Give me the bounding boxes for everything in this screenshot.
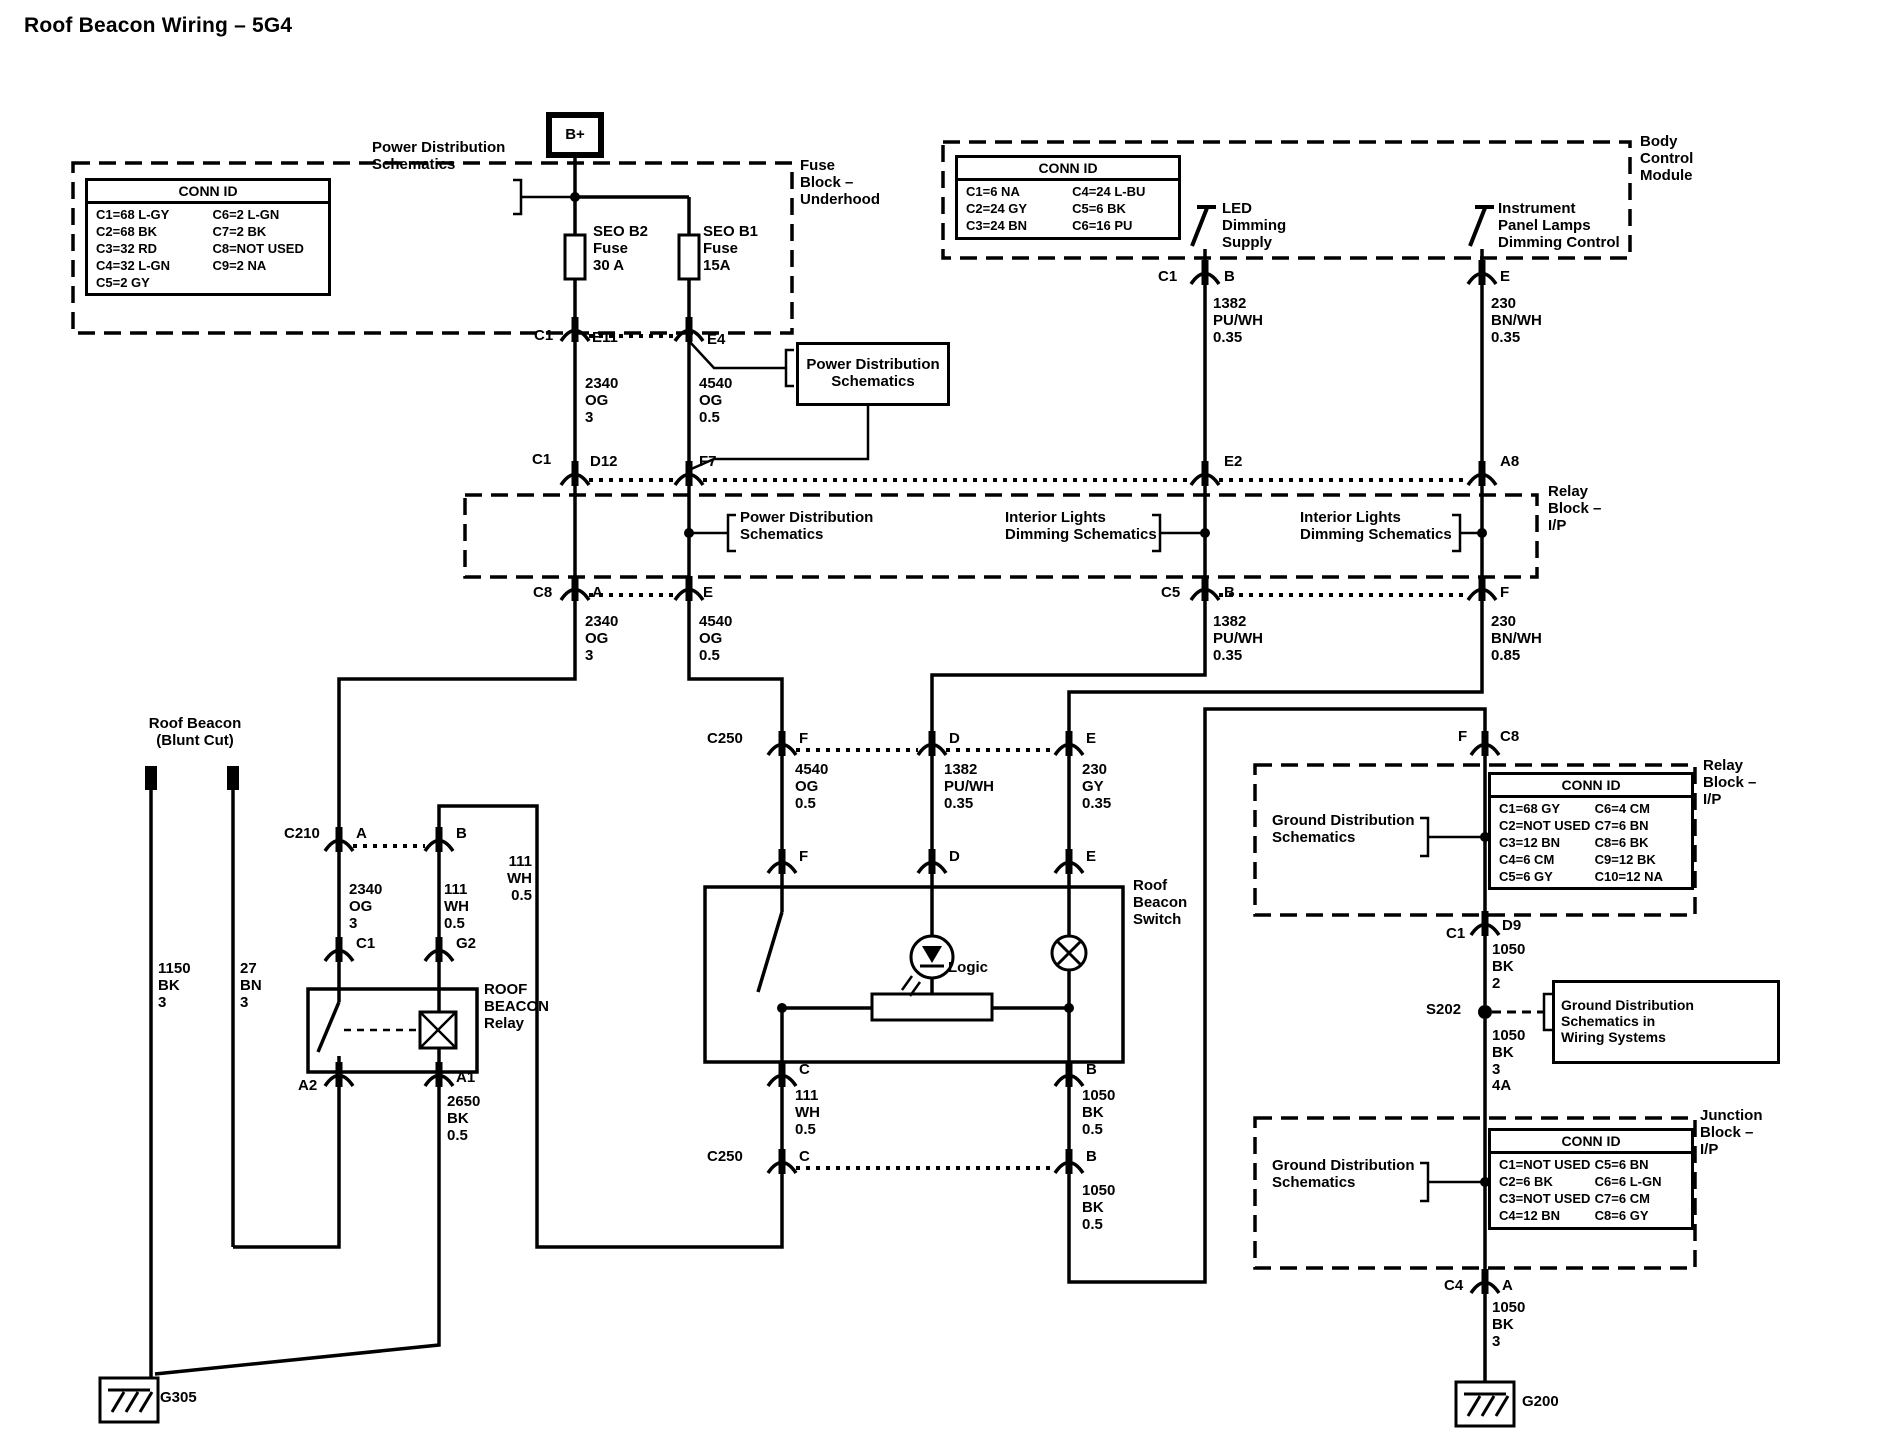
g200-label: G200: [1522, 1394, 1559, 1411]
gds-2-label: Ground Distribution Schematics: [1272, 1158, 1414, 1192]
blunt-cut-terminal-2: [227, 766, 239, 790]
bcm-b-label: B: [1224, 269, 1235, 286]
conn-id-box-relay-ip-row: C3=12 BNC8=6 BK: [1499, 835, 1683, 852]
gds-1-label: Ground Distribution Schematics: [1272, 813, 1414, 847]
bcm-c1-label: C1: [1158, 269, 1177, 286]
c210-a-label: A: [356, 826, 367, 843]
conn-id-cell: C8=6 GY: [1595, 1208, 1649, 1225]
w1382-2-label: 1382 PU/WH 0.35: [1213, 614, 1263, 664]
f-lbl-label: F: [1500, 585, 1509, 602]
conn-id-cell: C5=6 BN: [1595, 1157, 1649, 1174]
connector-stubs: [339, 260, 1485, 1294]
conn-id-cell: C8=NOT USED: [212, 241, 303, 258]
rc1-label: C1: [356, 936, 375, 953]
d12-label: D12: [590, 454, 618, 471]
sw-e-label: E: [1086, 849, 1096, 866]
conn-id-cell: C6=16 PU: [1072, 218, 1132, 235]
a2-label: A2: [298, 1078, 317, 1095]
conn-id-cell: C5=6 BK: [1072, 201, 1126, 218]
w2340-2-label: 2340 OG 3: [585, 614, 618, 664]
c5-lbl-label: C5: [1161, 585, 1180, 602]
conn-id-cell: C5=6 GY: [1499, 869, 1595, 886]
g305-label: G305: [160, 1390, 197, 1407]
logic-box: [872, 994, 992, 1020]
conn-id-box-bcm-row: C3=24 BNC6=16 PU: [966, 218, 1170, 235]
g2-label: G2: [456, 936, 476, 953]
conn-id-box-junction-ip-row: C2=6 BKC6=6 L-GN: [1499, 1174, 1683, 1191]
e11-label: E11: [592, 330, 618, 347]
conn-id-box-relay-ip-row: C4=6 CMC9=12 BK: [1499, 852, 1683, 869]
sw-c-label: C: [799, 1062, 810, 1079]
conn-id-cell: C7=6 CM: [1595, 1191, 1650, 1208]
sw-f-label: F: [799, 849, 808, 866]
w230gy-label: 230 GY 0.35: [1082, 762, 1111, 812]
conn-id-box-junction-ip-row: C4=12 BNC8=6 GY: [1499, 1208, 1683, 1225]
w4540-1-label: 4540 OG 0.5: [699, 376, 732, 426]
conn-id-cell: C1=NOT USED: [1499, 1157, 1595, 1174]
sw-b-label: B: [1086, 1062, 1097, 1079]
e4-label: E4: [707, 332, 725, 349]
blunt-label: Roof Beacon (Blunt Cut): [120, 716, 270, 750]
s202-label: S202: [1426, 1002, 1461, 1019]
conn-id-box-relay-ip-row: C2=NOT USEDC7=6 BN: [1499, 818, 1683, 835]
bcm-label: Body Control Module: [1640, 134, 1693, 184]
w1050-2-label: 1050 BK 0.5: [1082, 1183, 1115, 1233]
w1382-1-label: 1382 PU/WH 0.35: [1213, 296, 1263, 346]
sw-d-label: D: [949, 849, 960, 866]
conn-id-cell: C6=4 CM: [1595, 801, 1650, 818]
conn-c1-mid-label: C1: [532, 452, 551, 469]
ipl-control-label: Instrument Panel Lamps Dimming Control: [1498, 201, 1620, 251]
c8-lbl-label: C8: [533, 585, 552, 602]
f7-label: F7: [699, 454, 717, 471]
w1050-1-label: 1050 BK 0.5: [1082, 1088, 1115, 1138]
b-plus-label: B+: [549, 115, 601, 155]
e-lbl-label: E: [703, 585, 713, 602]
c210-label: C210: [284, 826, 320, 843]
logic-label: Logic: [948, 960, 988, 977]
conn-id-box-bcm-row: C2=24 GYC5=6 BK: [966, 201, 1170, 218]
conn-id-box-junction-ip-row: C1=NOT USEDC5=6 BN: [1499, 1157, 1683, 1174]
w111-2-label: 111 WH 0.5: [795, 1088, 820, 1138]
conn-c1-top-label: C1: [534, 328, 553, 345]
conn-id-cell: C6=6 L-GN: [1595, 1174, 1662, 1191]
rbs-label: Roof Beacon Switch: [1133, 878, 1187, 928]
bcm-e-label: E: [1500, 269, 1510, 286]
w27-label: 27 BN 3: [240, 961, 262, 1011]
conn-id-cell: C3=12 BN: [1499, 835, 1595, 852]
wiring-diagram-page: Roof Beacon Wiring – 5G4B+Power Distribu…: [0, 0, 1894, 1440]
conn-id-cell: C2=24 GY: [966, 201, 1072, 218]
roof-beacon-relay-box: [308, 989, 477, 1072]
title-label: Roof Beacon Wiring – 5G4: [24, 14, 292, 37]
conn-id-cell: C5=2 GY: [96, 275, 212, 292]
fuse-block-label: Fuse Block – Underhood: [800, 158, 880, 208]
relay-name-label: ROOF BEACON Relay: [484, 982, 549, 1032]
conn-id-cell: C6=2 L-GN: [212, 207, 279, 224]
w1150-label: 1150 BK 3: [158, 961, 191, 1011]
ilds-1-label: Interior Lights Dimming Schematics: [1005, 510, 1157, 544]
conn-id-box-fuse-underhood-row: C1=68 L-GYC6=2 L-GN: [96, 207, 320, 224]
conn-id-cell: C4=12 BN: [1499, 1208, 1595, 1225]
conn-id-cell: C1=6 NA: [966, 184, 1072, 201]
junction-ip-label: Junction Block – I/P: [1700, 1108, 1763, 1158]
ground-symbol-g305: [100, 1378, 158, 1422]
c250-d1-label: D: [949, 731, 960, 748]
conn-id-box-relay-ip-header: CONN ID: [1491, 775, 1691, 798]
conn-id-cell: C2=NOT USED: [1499, 818, 1595, 835]
instrument-panel-dimming-icon: [1470, 207, 1494, 246]
conn-id-cell: C8=6 BK: [1595, 835, 1649, 852]
fuse-seo-b1-symbol: [679, 235, 699, 279]
conn-id-cell: C7=2 BK: [212, 224, 266, 241]
w1050-bk2-label: 1050 BK 2: [1492, 942, 1525, 992]
connector-arcs: [325, 274, 1499, 1294]
w111-3-label: 111 WH 0.5: [492, 854, 532, 904]
ilds-2-label: Interior Lights Dimming Schematics: [1300, 510, 1452, 544]
w2650-label: 2650 BK 0.5: [447, 1094, 480, 1144]
w1050-34a-label: 1050 BK 3 4A: [1492, 1028, 1525, 1095]
conn-id-box-relay-ip: CONN IDC1=68 GYC6=4 CMC2=NOT USEDC7=6 BN…: [1488, 772, 1694, 890]
conn-id-box-junction-ip-header: CONN ID: [1491, 1131, 1691, 1154]
c210-b-label: B: [456, 826, 467, 843]
b-lbl-label: B: [1224, 585, 1235, 602]
c8-top-label: C8: [1500, 729, 1519, 746]
conn-id-box-bcm-header: CONN ID: [958, 158, 1178, 181]
seo-b2-label: SEO B2 Fuse 30 A: [593, 224, 648, 274]
conn-id-box-fuse-underhood-row: C5=2 GY: [96, 275, 320, 292]
s202-splice-dot: [1478, 1005, 1492, 1019]
d9-label: D9: [1502, 918, 1521, 935]
conn-id-cell: C3=32 RD: [96, 241, 212, 258]
conn-id-cell: C1=68 GY: [1499, 801, 1595, 818]
conn-id-cell: C3=NOT USED: [1499, 1191, 1595, 1208]
led-dimming-supply-icon: [1192, 207, 1216, 246]
conn-id-box-junction-ip-row: C3=NOT USEDC7=6 CM: [1499, 1191, 1683, 1208]
conn-id-box-fuse-underhood-row: C2=68 BKC7=2 BK: [96, 224, 320, 241]
w111-1-label: 111 WH 0.5: [444, 882, 469, 932]
conn-id-cell: C1=68 L-GY: [96, 207, 212, 224]
w230-1-label: 230 BN/WH 0.35: [1491, 296, 1542, 346]
w4540-3-label: 4540 OG 0.5: [795, 762, 828, 812]
conn-id-box-junction-ip: CONN IDC1=NOT USEDC5=6 BNC2=6 BKC6=6 L-G…: [1488, 1128, 1694, 1230]
conn-id-cell: C3=24 BN: [966, 218, 1072, 235]
conn-id-box-fuse-underhood-row: C4=32 L-GNC9=2 NA: [96, 258, 320, 275]
w4540-2-label: 4540 OG 0.5: [699, 614, 732, 664]
w2340-3-label: 2340 OG 3: [349, 882, 382, 932]
conn-id-cell: C4=32 L-GN: [96, 258, 212, 275]
conn-id-box-fuse-underhood: CONN IDC1=68 L-GYC6=2 L-GNC2=68 BKC7=2 B…: [85, 178, 331, 296]
a1-label: A1: [456, 1070, 475, 1087]
conn-id-cell: C9=2 NA: [212, 258, 266, 275]
c4-lbl-label: C4: [1444, 1278, 1463, 1295]
w1382-3-label: 1382 PU/WH 0.35: [944, 762, 994, 812]
pds-box-label: Power Distribution Schematics: [796, 342, 950, 406]
c250-1-label: C250: [707, 731, 743, 748]
fuse-seo-b2-symbol: [565, 235, 585, 279]
component-dashed-boxes: [73, 142, 1695, 1268]
conn-id-box-fuse-underhood-header: CONN ID: [88, 181, 328, 204]
w230-2-label: 230 BN/WH 0.85: [1491, 614, 1542, 664]
pds-top-label: Power Distribution Schematics: [372, 140, 505, 174]
pds-relay-label: Power Distribution Schematics: [740, 510, 873, 544]
conn-id-box-fuse-underhood-row: C3=32 RDC8=NOT USED: [96, 241, 320, 258]
conn-id-cell: C9=12 BK: [1595, 852, 1656, 869]
w1050-3-label: 1050 BK 3: [1492, 1300, 1525, 1350]
conn-id-cell: C4=6 CM: [1499, 852, 1595, 869]
ground-symbol-g200: [1456, 1382, 1514, 1426]
conn-id-cell: C4=24 L-BU: [1072, 184, 1145, 201]
f-top-label: F: [1458, 729, 1467, 746]
e2-label: E2: [1224, 454, 1242, 471]
conn-id-box-relay-ip-row: C5=6 GYC10=12 NA: [1499, 869, 1683, 886]
conn-id-box-relay-ip-row: C1=68 GYC6=4 CM: [1499, 801, 1683, 818]
c4-a-label: A: [1502, 1278, 1513, 1295]
a-lbl-label: A: [592, 585, 603, 602]
c250-c2-label: C: [799, 1149, 810, 1166]
c250-2-label: C250: [707, 1149, 743, 1166]
c250-f1-label: F: [799, 731, 808, 748]
conn-id-box-bcm: CONN IDC1=6 NAC4=24 L-BUC2=24 GYC5=6 BKC…: [955, 155, 1181, 240]
connector-row-dotted-lines: [353, 336, 1468, 1168]
conn-id-cell: C2=6 BK: [1499, 1174, 1595, 1191]
seo-b1-label: SEO B1 Fuse 15A: [703, 224, 758, 274]
c250-b2-label: B: [1086, 1149, 1097, 1166]
relay-ip-label: Relay Block – I/P: [1703, 758, 1756, 808]
blunt-cut-terminal-1: [145, 766, 157, 790]
d9-c1-label: C1: [1446, 926, 1465, 943]
conn-id-cell: C2=68 BK: [96, 224, 212, 241]
a8-label: A8: [1500, 454, 1519, 471]
w2340-1-label: 2340 OG 3: [585, 376, 618, 426]
gds-ws-label: Ground Distribution Schematics in Wiring…: [1552, 980, 1780, 1064]
conn-id-cell: C7=6 BN: [1595, 818, 1649, 835]
led-supply-label: LED Dimming Supply: [1222, 201, 1286, 251]
roof-beacon-switch-box: [705, 887, 1123, 1062]
relay-block-label: Relay Block – I/P: [1548, 484, 1601, 534]
conn-id-box-bcm-row: C1=6 NAC4=24 L-BU: [966, 184, 1170, 201]
c250-e1-label: E: [1086, 731, 1096, 748]
conn-id-cell: C10=12 NA: [1595, 869, 1663, 886]
